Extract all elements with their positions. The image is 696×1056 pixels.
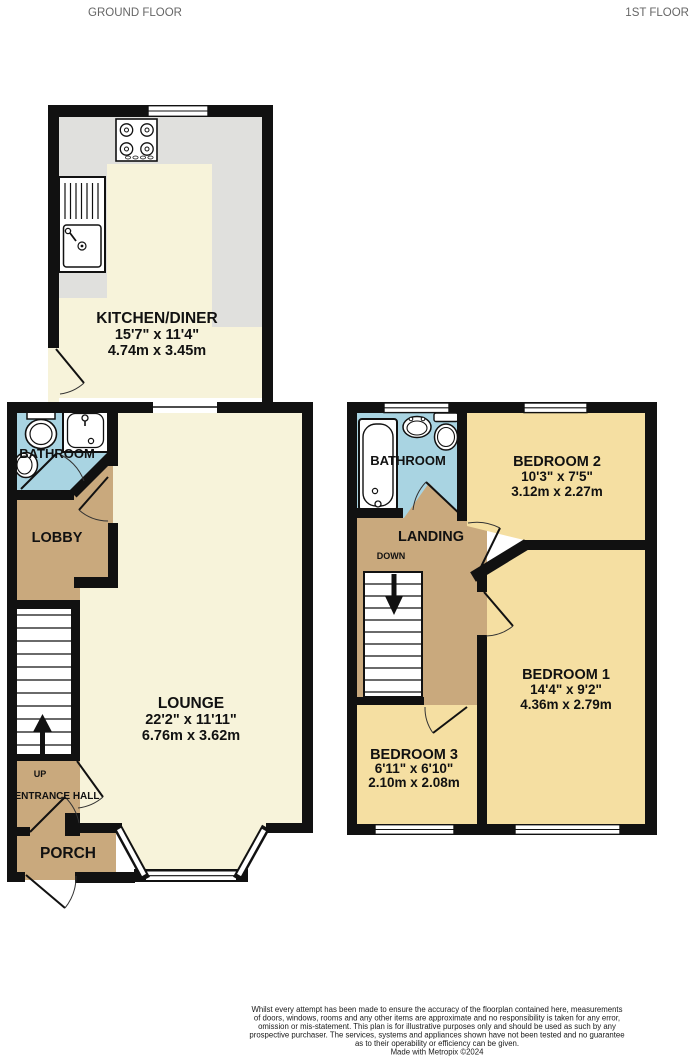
first-floor-heading: 1ST FLOOR	[625, 7, 689, 19]
bathroom-gf-label: BATHROOM	[19, 446, 95, 461]
bedroom3-window	[375, 825, 454, 835]
hob-icon	[116, 119, 157, 161]
metropix-credit: Made with Metropix ©2024	[391, 1048, 485, 1056]
floorplan-page: KITCHEN/DINER 15'7" x 11'4" 4.74m x 3.45…	[0, 0, 696, 1056]
stairs-down	[364, 572, 422, 697]
basin-1f-icon	[403, 417, 431, 438]
bedroom2-window	[524, 403, 587, 413]
kitchen-imperial-dims: 15'7" x 11'4"	[115, 327, 199, 343]
bedroom1-metric-dims: 4.36m x 2.79m	[520, 697, 612, 712]
kitchen-name-label: KITCHEN/DINER	[96, 310, 217, 327]
first-floor-plan: BATHROOM BEDROOM 2 10'3" x 7'5" 3.12m x …	[347, 402, 657, 835]
up-label: UP	[34, 769, 47, 779]
floorplan-svg: KITCHEN/DINER 15'7" x 11'4" 4.74m x 3.45…	[0, 0, 696, 1056]
bedroom3-metric-dims: 2.10m x 2.08m	[368, 775, 460, 790]
bedroom3-imperial-dims: 6'11" x 6'10"	[375, 761, 454, 776]
lounge-metric-dims: 6.76m x 3.62m	[142, 728, 240, 744]
bedroom1-window	[515, 825, 620, 835]
ground-floor-heading: GROUND FLOOR	[88, 7, 182, 19]
bedroom2-metric-dims: 3.12m x 2.27m	[511, 484, 603, 499]
bedroom1-name-label: BEDROOM 1	[522, 667, 610, 683]
porch-label: PORCH	[40, 845, 96, 862]
bedroom1-imperial-dims: 14'4" x 9'2"	[530, 682, 602, 697]
kitchen-window	[148, 106, 208, 117]
lobby-label: LOBBY	[32, 530, 83, 546]
disclaimer-text: Whilst every attempt has been made to en…	[249, 1005, 624, 1056]
ground-floor-plan: KITCHEN/DINER 15'7" x 11'4" 4.74m x 3.45…	[7, 105, 313, 908]
room-lounge-floor-left	[80, 588, 118, 823]
kitchen-sink-unit-icon	[59, 177, 105, 272]
toilet-gf-icon	[26, 411, 57, 449]
toilet-1f-icon	[434, 413, 458, 450]
down-label: DOWN	[377, 551, 406, 561]
bedroom2-name-label: BEDROOM 2	[513, 454, 601, 470]
bedroom2-imperial-dims: 10'3" x 7'5"	[521, 469, 593, 484]
landing-label: LANDING	[398, 529, 464, 545]
bathroom-1f-window	[384, 403, 449, 413]
stairs-up	[12, 602, 72, 757]
bathroom-1f-label: BATHROOM	[370, 453, 446, 468]
room-lounge-floor	[113, 413, 302, 823]
lounge-name-label: LOUNGE	[158, 695, 224, 712]
kitchen-door-floor	[48, 348, 59, 402]
lounge-imperial-dims: 22'2" x 11'11"	[145, 712, 237, 728]
entrance-hall-label: ENTRANCE HALL	[15, 791, 100, 802]
drainer-lines	[65, 183, 98, 219]
kitchen-metric-dims: 4.74m x 3.45m	[108, 343, 206, 359]
